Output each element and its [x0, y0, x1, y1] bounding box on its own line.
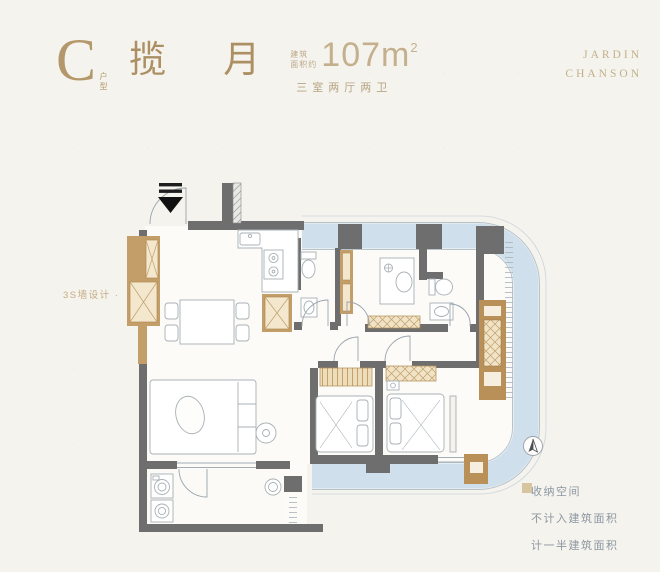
- corner-storage: [464, 454, 488, 484]
- study-desk: [380, 258, 414, 304]
- shaft-hatched-wall: [233, 183, 241, 223]
- brand-line1: JARDIN: [552, 46, 642, 65]
- brand-line2: CHANSON: [552, 65, 642, 84]
- wall-tick-hatch: [285, 493, 298, 525]
- bedroom2-wardrobe: [386, 366, 436, 381]
- legend-row-storage: 收纳空间: [522, 483, 619, 499]
- area-value: 107m2: [321, 38, 417, 72]
- desk-chair: [396, 272, 412, 292]
- kitchen-cabinet: [262, 294, 292, 332]
- bedroom1-bed: [316, 396, 373, 452]
- unit-type-label: 户型: [98, 72, 109, 92]
- unit-name: 揽 月: [129, 42, 284, 79]
- unit-letter: C: [56, 30, 96, 90]
- title-block: C 户型 揽 月 建筑 面积约 107m2 三室两厅两卫: [56, 30, 418, 95]
- brand-logo: JARDIN CHANSON: [552, 46, 642, 84]
- floor-drain: [265, 479, 281, 495]
- area-note-line1: 建筑: [290, 50, 317, 60]
- entry-arrow-icon: [158, 183, 183, 213]
- area-exponent: 2: [410, 40, 417, 55]
- study-wardrobe: [340, 250, 353, 314]
- washer-dryer: [151, 474, 173, 522]
- legend: 收纳空间 不计入建筑面积 计一半建筑面积: [522, 483, 619, 564]
- half-area-swatch-icon: [522, 483, 532, 493]
- hall-wardrobe: [368, 316, 420, 328]
- area-note: 建筑 面积约: [290, 50, 317, 70]
- rooms-desc: 三室两厅两卫: [296, 79, 417, 95]
- floor-plan-page: C 户型 揽 月 建筑 面积约 107m2 三室两厅两卫 JARDIN CHAN…: [0, 0, 660, 572]
- legend-row-excluded-area: 不计入建筑面积: [522, 510, 619, 526]
- area-unit: m: [381, 36, 410, 74]
- legend-label: 不计入建筑面积: [531, 510, 619, 526]
- right-storage-column: [479, 300, 506, 400]
- sofa: [150, 380, 256, 454]
- bedroom1-wardrobe: [320, 368, 372, 386]
- legend-row-half-area: 计一半建筑面积: [522, 537, 619, 553]
- side-table: [256, 423, 276, 443]
- legend-label: 收纳空间: [531, 483, 581, 499]
- compass-icon: [524, 437, 543, 456]
- area-number: 107: [321, 36, 381, 74]
- area-note-line2: 面积约: [290, 60, 317, 70]
- legend-label: 计一半建筑面积: [531, 537, 619, 553]
- area-block: 建筑 面积约 107m2 三室两厅两卫: [290, 38, 417, 95]
- wall-design-annotation: 3S墙设计 ·: [63, 287, 119, 301]
